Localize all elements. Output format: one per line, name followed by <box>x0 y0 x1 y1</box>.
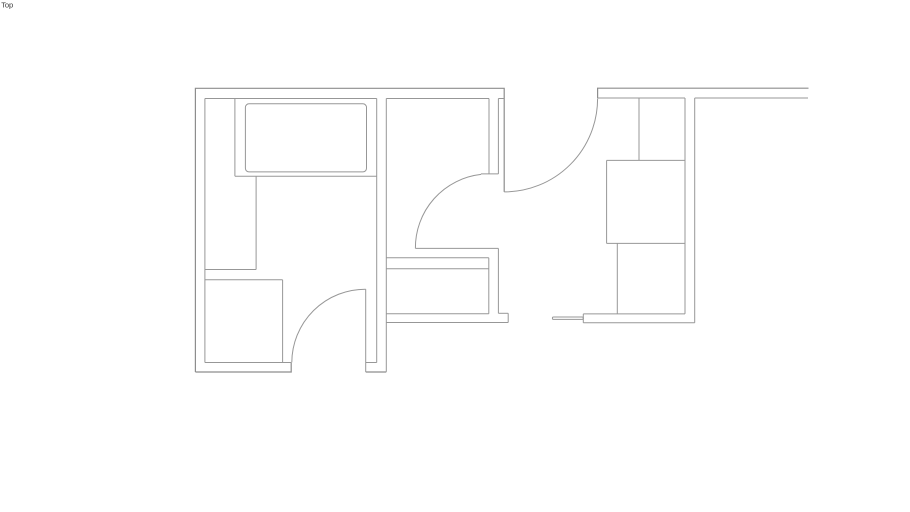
svg-text:Top: Top <box>1 0 13 9</box>
